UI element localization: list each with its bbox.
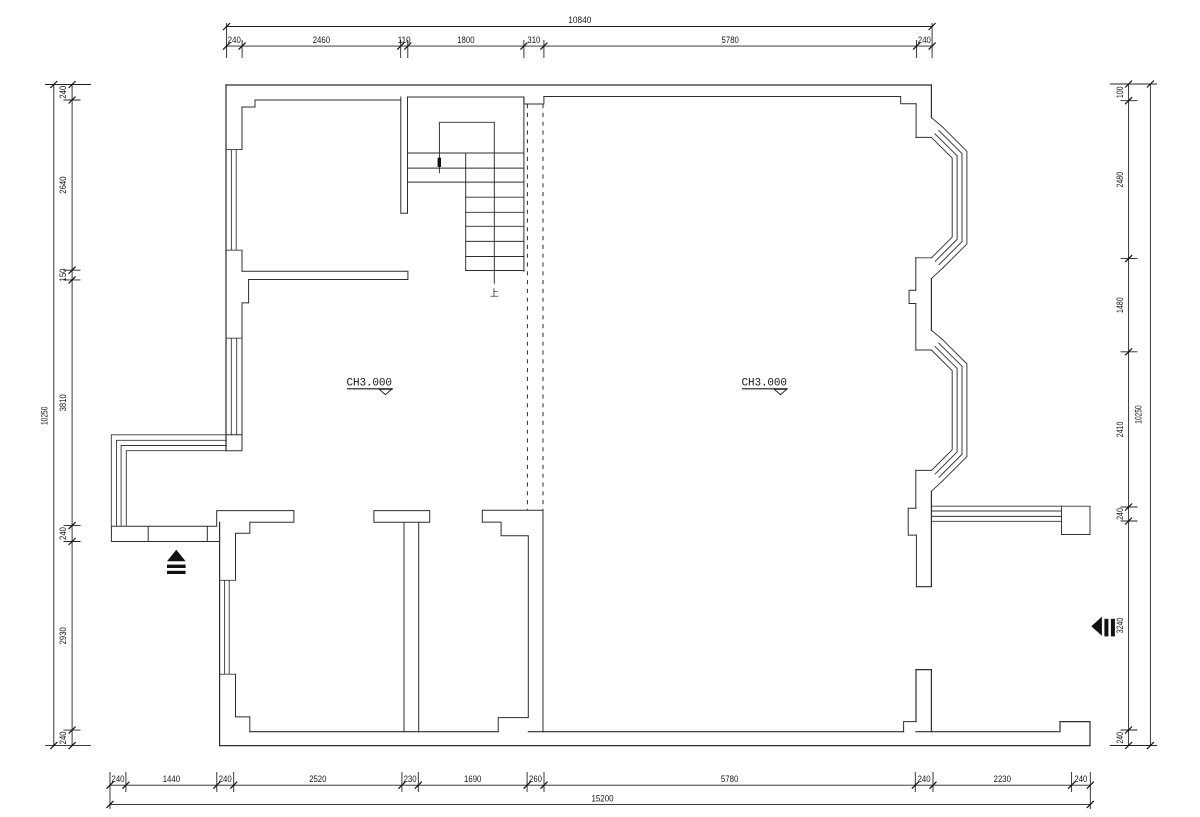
svg-text:260: 260 [529,774,542,784]
svg-text:5780: 5780 [721,774,738,784]
svg-text:3240: 3240 [1115,618,1125,634]
svg-text:240: 240 [112,774,125,784]
svg-text:10840: 10840 [568,15,591,25]
svg-text:1690: 1690 [464,774,481,784]
svg-text:1480: 1480 [1115,297,1125,313]
svg-text:110: 110 [398,35,411,45]
svg-text:CH3.000: CH3.000 [742,378,788,390]
svg-text:240: 240 [1115,732,1125,744]
svg-text:240: 240 [58,527,68,540]
svg-text:2460: 2460 [313,35,330,45]
svg-text:2640: 2640 [58,177,68,194]
svg-text:310: 310 [527,35,540,45]
svg-text:5780: 5780 [722,35,739,45]
svg-text:240: 240 [1074,774,1087,784]
svg-text:2930: 2930 [58,627,68,644]
svg-text:240: 240 [1115,508,1125,520]
svg-text:240: 240 [918,35,931,45]
svg-text:3810: 3810 [58,394,68,411]
svg-text:10250: 10250 [40,407,50,426]
svg-text:100: 100 [1115,86,1125,98]
svg-text:1440: 1440 [163,774,180,784]
svg-text:上: 上 [490,288,499,298]
svg-text:2410: 2410 [1115,422,1125,438]
svg-text:CH3.000: CH3.000 [347,378,393,390]
svg-text:10250: 10250 [1134,405,1144,424]
svg-text:2520: 2520 [309,774,326,784]
svg-text:2230: 2230 [994,774,1011,784]
svg-text:15200: 15200 [592,794,614,804]
svg-text:2480: 2480 [1115,172,1125,188]
svg-text:240: 240 [58,731,68,744]
svg-text:240: 240 [58,86,68,99]
svg-text:240: 240 [918,774,931,784]
svg-text:1800: 1800 [457,35,474,45]
svg-text:230: 230 [404,774,417,784]
svg-text:240: 240 [219,774,232,784]
svg-text:240: 240 [228,35,241,45]
svg-text:150: 150 [58,269,68,282]
